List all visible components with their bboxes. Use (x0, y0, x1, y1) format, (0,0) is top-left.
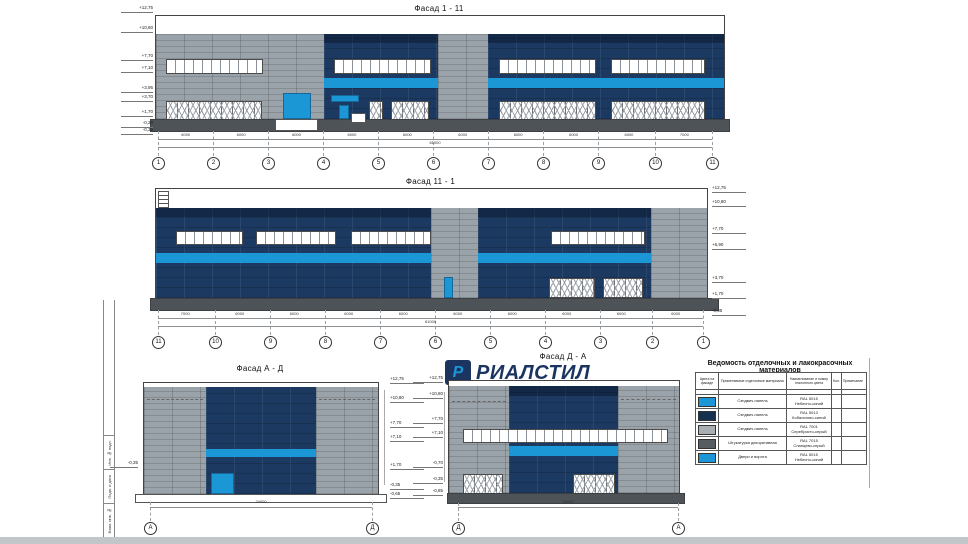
ral-name: Сланцево-серый (793, 444, 824, 449)
entrance-steps (351, 113, 366, 123)
facade-1-11-elevation (155, 15, 725, 132)
elevation-mark: +7,70 (413, 417, 443, 424)
grid-bubble: 5 (484, 336, 497, 349)
drawing-sheet: Фасад 1 - 11 60006000600060006000600 (0, 0, 968, 544)
sheet-bottom-edge (0, 537, 968, 544)
grid-bubble: 10 (649, 157, 662, 170)
sheet-fold-line (869, 358, 870, 488)
window-band (256, 231, 336, 245)
col-header-qty: Кол. (832, 373, 842, 389)
elevation-mark: +3,70 (121, 95, 153, 102)
louver-band (391, 101, 429, 120)
parapet-band (324, 34, 438, 43)
blue-stripe (156, 253, 431, 263)
elevation-mark: +7,10 (413, 431, 443, 438)
blue-stripe (478, 253, 651, 263)
grid-bubble: 3 (262, 157, 275, 170)
color-swatch (698, 439, 716, 449)
ral-name: Кобальтово-синий (792, 416, 826, 421)
window-band (463, 429, 668, 443)
col-header-note: Примечание (842, 373, 864, 389)
hidden-roof-line (621, 399, 676, 400)
color-swatch (698, 425, 716, 435)
bay-dimensions: 6000600060006000600060006000600060007000 (158, 133, 712, 137)
color-swatch (698, 411, 716, 421)
louver-band (549, 278, 595, 298)
elevation-mark: +10,80 (413, 392, 443, 399)
facade-1-11-title: Фасад 1 - 11 (155, 4, 723, 13)
door-apron (275, 119, 318, 131)
hidden-roof-line (452, 401, 506, 402)
dimension-chain (444, 392, 445, 482)
gate-door (283, 93, 311, 119)
elevation-mark: +1,70 (121, 110, 153, 117)
louver-band (499, 101, 596, 120)
grid-bubble: 8 (319, 336, 332, 349)
grid-bubble: 9 (264, 336, 277, 349)
blue-stripe (488, 78, 724, 88)
ral-name: Серебристо-серый (791, 430, 826, 435)
window-band (611, 59, 705, 74)
bay-dimensions: 7000600060006000600060006000600060006000 (158, 312, 703, 316)
window-band (551, 231, 645, 245)
elevation-mark: -0,70 (413, 461, 443, 468)
ral-name: Небесно-синий (795, 458, 823, 463)
elevation-mark: +12,75 (121, 6, 153, 13)
table-row: Сэндвич-панель RAL 5013Кобальтово-синий (696, 409, 866, 423)
title-block-margin: Инв. № подл. Подп. и дата Взам. инв. № (103, 300, 115, 537)
entrance-canopy (331, 95, 359, 102)
material-name: Сэндвич-панель (719, 409, 787, 422)
elevation-mark: +10,80 (121, 26, 153, 33)
grid-line (678, 503, 679, 521)
elevation-mark: +7,10 (121, 66, 153, 73)
table-row: Двери и ворота RAL 5015Небесно-синий (696, 451, 866, 464)
grid-bubble: 7 (482, 157, 495, 170)
window-band (351, 231, 431, 245)
ral-name: Небесно-синий (795, 402, 823, 407)
louver-band (463, 474, 503, 495)
facade-d-a-title: Фасад Д - А (448, 352, 678, 361)
grid-bubble: Д (366, 522, 379, 535)
elevation-mark: -0,35 (121, 128, 153, 135)
elevation-mark: -0,35 (712, 309, 746, 316)
roof-ladder (158, 191, 169, 208)
louver-band (166, 101, 262, 120)
grid-line (458, 503, 459, 521)
elevation-mark: -0,35 (413, 477, 443, 484)
grid-bubble: Д (452, 522, 465, 535)
elevation-mark: +12,75 (413, 376, 443, 383)
material-name: Двери и ворота (719, 451, 787, 464)
elevation-mark: +6,90 (712, 243, 746, 250)
col-header-swatch: Цвета на фасаде (696, 373, 719, 389)
grid-bubble: 1 (697, 336, 710, 349)
grid-bubble: 11 (706, 157, 719, 170)
louver-band (603, 278, 643, 298)
window-band (499, 59, 596, 74)
grid-bubble: 11 (152, 336, 165, 349)
hidden-roof-line (319, 399, 375, 400)
grid-bubble: 6 (427, 157, 440, 170)
grid-bubble: 6 (429, 336, 442, 349)
elevation-mark: +1,70 (712, 292, 746, 299)
material-name: Штукатурка декоративная (719, 437, 787, 450)
elevation-mark: +3,95 (121, 86, 153, 93)
parapet-band (156, 208, 431, 217)
facade-11-1-elevation (155, 188, 708, 311)
louver-band (611, 101, 705, 120)
plinth (150, 119, 730, 132)
col-header-material: Применяемые отделочные материалы (719, 373, 787, 389)
grid-bubble: 10 (209, 336, 222, 349)
stamp-cell: Подп. и дата (104, 469, 114, 504)
wall-grey (431, 208, 478, 298)
hidden-roof-line (147, 399, 203, 400)
elevation-mark: -0,85 (413, 489, 443, 496)
wall-grey (144, 387, 206, 494)
grid-bubble: 9 (592, 157, 605, 170)
dimension-line (150, 507, 372, 508)
grid-bubble: А (672, 522, 685, 535)
parapet-band (478, 208, 651, 217)
total-dimension: 61000 (158, 141, 712, 145)
window-band (334, 59, 431, 74)
grid-bubble: 3 (594, 336, 607, 349)
elevation-mark: +3,70 (712, 276, 746, 283)
parapet-band (488, 34, 724, 43)
total-dimension: 24000 (150, 500, 372, 504)
grid-bubble: 4 (539, 336, 552, 349)
grid-bubble: 1 (152, 157, 165, 170)
dimension-chain (384, 390, 385, 485)
table-row: Штукатурка декоративная RAL 7015Сланцево… (696, 437, 866, 451)
table-row: Сэндвич-панель RAL 7001Серебристо-серый (696, 423, 866, 437)
grid-line (712, 131, 713, 156)
table-row: Сэндвич-панель RAL 5015Небесно-синий (696, 395, 866, 409)
louver-band (369, 101, 383, 120)
entrance-door (339, 105, 349, 119)
gate-door (211, 473, 234, 494)
color-swatch (698, 397, 716, 407)
wall-grey (651, 208, 707, 298)
stamp-cell: Взам. инв. № (104, 503, 114, 538)
stamp-cell: Инв. № подл. (104, 435, 114, 470)
grid-line (372, 502, 373, 521)
parapet-band (509, 386, 618, 396)
elevation-mark: +7,70 (121, 54, 153, 61)
materials-table: Цвета на фасаде Применяемые отделочные м… (695, 372, 867, 465)
elevation-mark: +10,80 (712, 200, 746, 207)
dimension-line (458, 507, 678, 508)
grid-line (150, 502, 151, 521)
elevation-mark: +12,75 (712, 186, 746, 193)
blue-stripe (509, 446, 618, 456)
dimension-line (158, 147, 712, 148)
blue-stripe (206, 449, 316, 457)
table-header-row: Цвета на фасаде Применяемые отделочные м… (696, 373, 866, 390)
material-name: Сэндвич-панель (719, 395, 787, 408)
window-band (176, 231, 243, 245)
grid-bubble: 8 (537, 157, 550, 170)
grid-bubble: 4 (317, 157, 330, 170)
grid-bubble: А (144, 522, 157, 535)
window-band (166, 59, 263, 74)
wall-grey (316, 387, 378, 494)
color-swatch (698, 453, 716, 463)
material-name: Сэндвич-панель (719, 423, 787, 436)
total-dimension: 24000 (458, 500, 678, 504)
grid-line (703, 310, 704, 335)
facade-a-d-elevation (143, 382, 379, 503)
grid-bubble: 5 (372, 157, 385, 170)
total-dimension: 61000 (158, 320, 703, 324)
grid-bubble: 7 (374, 336, 387, 349)
facade-11-1-title: Фасад 11 - 1 (155, 177, 706, 186)
wall-grey (438, 34, 488, 119)
grid-bubble: 2 (207, 157, 220, 170)
dimension-line (158, 326, 703, 327)
elevation-mark: +7,70 (712, 227, 746, 234)
facade-d-a-elevation (448, 380, 680, 504)
entrance-door (444, 277, 453, 298)
louver-band (573, 474, 615, 495)
facade-a-d-title: Фасад А - Д (143, 364, 377, 373)
col-header-color: Наименование и номер эталонного цвета (787, 373, 832, 389)
grid-bubble: 2 (646, 336, 659, 349)
blue-stripe (324, 78, 438, 88)
